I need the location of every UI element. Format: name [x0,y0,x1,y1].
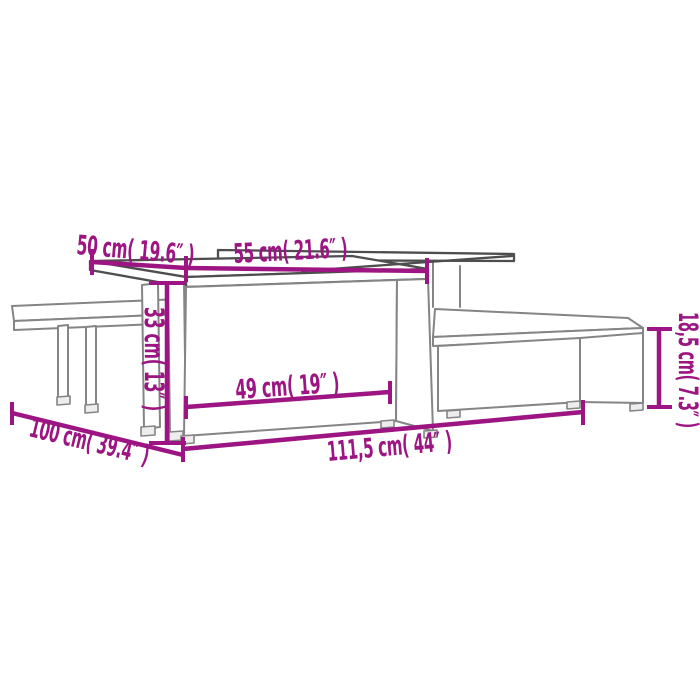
shelf-foot [85,404,98,413]
main-foot [141,426,155,436]
platform-foot [447,410,460,418]
platform-box-front [438,338,580,411]
shelf-foot [57,396,70,405]
platform-foot [567,401,580,409]
main-front-panel [184,280,397,436]
platform-box-side [580,333,643,403]
main-right-side-panel [396,279,433,431]
product-dimension-image: 50 cm( 19.6″ ) 55 cm( 21.6″ ) 33 cm( 13″… [0,0,700,700]
right-low-platform [433,309,643,418]
main-foot [381,420,394,428]
main-leg-panel [168,282,186,434]
shelf-leg-panel [58,325,68,398]
dim-label-tall-height: 33 cm( 13″ ) [138,307,169,411]
platform-foot [630,403,643,411]
dim-label-total-depth: 100 cm( 39.4″ ) [26,413,152,472]
dim-label-low-height: 18,5 cm( 7.3″ ) [672,312,700,428]
coffee-table-diagram: 50 cm( 19.6″ ) 55 cm( 21.6″ ) 33 cm( 13″… [0,0,700,700]
dim-label-top-width: 55 cm( 21.6″ ) [233,233,348,270]
shelf-leg-panel [86,326,96,406]
